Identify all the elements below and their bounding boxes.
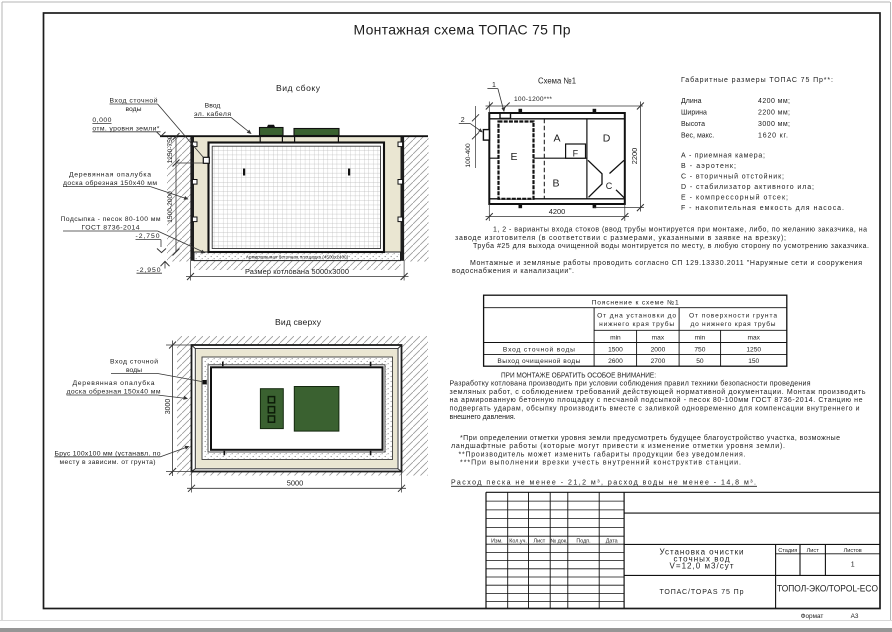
svg-text:Пояснение к схеме №1: Пояснение к схеме №1 (592, 299, 679, 306)
svg-text:А - приемная камера;: А - приемная камера; (681, 153, 765, 160)
svg-text:эл. кабеля: эл. кабеля (194, 110, 231, 118)
svg-text:*При определении отметки уровн: *При определении отметки уровня земли пр… (460, 434, 840, 442)
svg-text:2: 2 (461, 117, 465, 124)
svg-text:4200: 4200 (549, 207, 565, 216)
svg-text:Ширина: Ширина (681, 110, 707, 117)
svg-text:Вход сточной: Вход сточной (110, 97, 158, 105)
svg-text:Деревянная опалубка: Деревянная опалубка (73, 379, 155, 387)
svg-text:2700: 2700 (651, 358, 666, 365)
svg-text:1620 кг.: 1620 кг. (758, 133, 788, 140)
svg-text:Вес, макс.: Вес, макс. (681, 133, 714, 140)
svg-text:2200 мм;: 2200 мм; (758, 110, 790, 117)
svg-text:внешнего давления.: внешнего давления. (450, 414, 516, 421)
svg-text:Формат: Формат (801, 613, 824, 620)
svg-text:Брус 100х100 мм (устанавл. по: Брус 100х100 мм (устанавл. по (55, 450, 161, 457)
svg-text:0,000: 0,000 (92, 117, 111, 124)
svg-text:4200 мм;: 4200 мм; (758, 98, 790, 105)
svg-text:Изм.: Изм. (491, 538, 503, 544)
svg-text:ландшафтные работы (которые мо: ландшафтные работы (которые могут привес… (451, 442, 785, 450)
svg-text:подвергать ударам, обсыпку про: подвергать ударам, обсыпку производить в… (450, 405, 860, 413)
svg-text:на армированную бетонную площа: на армированную бетонную площадку с песч… (450, 396, 863, 404)
svg-text:D - стабилизатор активного ила: D - стабилизатор активного ила; (681, 183, 814, 191)
svg-text:1500: 1500 (608, 346, 623, 353)
svg-text:Е - компрессорный отсек;: Е - компрессорный отсек; (681, 194, 788, 202)
svg-text:отм. уровня земли*: отм. уровня земли* (92, 125, 159, 132)
svg-text:100-1200***: 100-1200*** (514, 96, 552, 103)
svg-text:3000 мм;: 3000 мм; (758, 121, 790, 128)
svg-text:**Производитель может изменить: **Производитель может изменить габариты … (459, 450, 746, 458)
svg-text:водоснабжения и канализации".: водоснабжения и канализации". (452, 267, 574, 275)
svg-text:месту в зависим. от грунта): месту в зависим. от грунта) (60, 459, 156, 466)
svg-text:D: D (603, 133, 611, 145)
svg-text:1250-750: 1250-750 (167, 135, 174, 163)
svg-text:нижнего края трубы: нижнего края трубы (599, 320, 674, 328)
svg-text:-2,750: -2,750 (136, 233, 160, 240)
svg-text:Армированная бетонная площадка: Армированная бетонная площадка (4500х240… (246, 254, 349, 259)
svg-text:Разработку котлована производи: Разработку котлована производить при усл… (450, 380, 811, 388)
svg-text:***При выполнении врезки учест: ***При выполнении врезки учесть внутренн… (460, 459, 741, 467)
svg-text:Ввод: Ввод (205, 103, 221, 110)
svg-text:min: min (610, 335, 621, 342)
svg-text:2600: 2600 (608, 358, 623, 365)
svg-text:Деревянная опалубка: Деревянная опалубка (69, 171, 151, 179)
svg-text:1: 1 (492, 82, 496, 89)
svg-text:min: min (695, 335, 706, 342)
svg-text:Лист: Лист (807, 548, 820, 554)
svg-text:Вход сточной: Вход сточной (110, 358, 158, 366)
svg-text:ТОПОЛ-ЭКО/TOPOL-ECO: ТОПОЛ-ЭКО/TOPOL-ECO (777, 584, 878, 594)
svg-text:заводе изготовителя (в соответ: заводе изготовителя (в соответствии с ра… (455, 235, 786, 242)
svg-text:F: F (573, 148, 579, 158)
svg-text:1500-2000: 1500-2000 (167, 191, 174, 223)
svg-text:Монтажные и земляные работы пр: Монтажные и земляные работы проводить со… (470, 259, 862, 267)
svg-text:Габаритные размеры ТОПАС 75 Пр: Габаритные размеры ТОПАС 75 Пр**: (681, 76, 833, 84)
svg-text:С - вторичный отстойник;: С - вторичный отстойник; (681, 173, 784, 181)
svg-text:Расход песка не менее - 21,2 м: Расход песка не менее - 21,2 м³, расход … (451, 479, 756, 486)
svg-text:В - аэротенк;: В - аэротенк; (681, 163, 736, 170)
svg-text:Выход очищенной воды: Выход очищенной воды (497, 357, 580, 365)
svg-text:От поверхности грунта: От поверхности грунта (689, 312, 777, 319)
svg-text:Вид сбоку: Вид сбоку (276, 83, 321, 93)
svg-text:Монтажная схема ТОПАС 75 Пр: Монтажная схема ТОПАС 75 Пр (354, 21, 571, 37)
svg-text:ТОПАС/TOPAS 75 Пр: ТОПАС/TOPAS 75 Пр (660, 589, 744, 596)
svg-text:до нижнего края трубы: до нижнего края трубы (691, 320, 776, 328)
svg-text:Кол.уч.: Кол.уч. (509, 538, 527, 544)
svg-text:Вход сточной воды: Вход сточной воды (503, 345, 575, 353)
svg-text:Стадия: Стадия (778, 548, 797, 554)
svg-text:150: 150 (748, 358, 759, 365)
svg-text:Размер котлована 5000х3000: Размер котлована 5000х3000 (245, 267, 349, 276)
svg-text:C: C (606, 181, 613, 191)
svg-text:2000: 2000 (651, 346, 666, 353)
svg-text:Высота: Высота (681, 121, 705, 128)
svg-text:1, 2 - варианты входа стоков: 1, 2 - варианты входа стоков (ввод трубы… (493, 226, 867, 234)
svg-text:V=12,0 м3/сут: V=12,0 м3/сут (670, 561, 734, 570)
svg-text:Листов: Листов (844, 548, 862, 554)
svg-text:ГОСТ 8736-2014: ГОСТ 8736-2014 (82, 225, 140, 232)
svg-text:50: 50 (696, 358, 704, 365)
svg-text:воды: воды (125, 106, 141, 113)
svg-text:max: max (652, 335, 665, 342)
svg-text:-2,950: -2,950 (137, 267, 161, 274)
svg-text:доска обрезная 150х40 мм: доска обрезная 150х40 мм (67, 388, 161, 396)
svg-text:№ док.: № док. (550, 538, 567, 544)
svg-text:5000: 5000 (287, 479, 303, 488)
svg-text:А3: А3 (851, 613, 859, 620)
svg-text:доска обрезная 150х40 мм: доска обрезная 150х40 мм (63, 179, 157, 187)
svg-text:Труба #25 для выхода очищенной: Труба #25 для выхода очищенной воды монт… (473, 242, 869, 250)
svg-text:B: B (552, 178, 559, 190)
svg-text:Вид сверху: Вид сверху (275, 317, 322, 327)
svg-text:Лист: Лист (534, 538, 546, 544)
svg-text:A: A (553, 133, 560, 145)
svg-text:max: max (747, 335, 760, 342)
svg-text:3000: 3000 (165, 399, 172, 415)
svg-text:земляных работ, с соблюдением: земляных работ, с соблюдением требований… (450, 388, 866, 396)
svg-text:От дна установки до: От дна установки до (597, 312, 676, 319)
svg-text:Дата: Дата (606, 538, 618, 544)
svg-text:E: E (510, 151, 517, 163)
svg-text:750: 750 (694, 346, 705, 353)
svg-text:Подп.: Подп. (576, 538, 590, 544)
svg-text:1: 1 (851, 562, 855, 569)
svg-text:воды: воды (126, 367, 142, 374)
svg-text:ПРИ МОНТАЖЕ ОБРАТИТЬ ОСОБОЕ ВН: ПРИ МОНТАЖЕ ОБРАТИТЬ ОСОБОЕ ВНИМАНИЕ: (501, 372, 656, 379)
svg-text:100-400: 100-400 (465, 143, 472, 168)
svg-text:Схема №1: Схема №1 (538, 76, 576, 86)
svg-text:Длина: Длина (681, 98, 702, 105)
svg-text:F - накопительная емкость для: F - накопительная емкость для насоса. (681, 205, 844, 212)
svg-text:Подсыпка - песок 80-100 мм: Подсыпка - песок 80-100 мм (61, 216, 161, 223)
svg-text:1250: 1250 (746, 346, 761, 353)
svg-text:2200: 2200 (630, 148, 639, 164)
